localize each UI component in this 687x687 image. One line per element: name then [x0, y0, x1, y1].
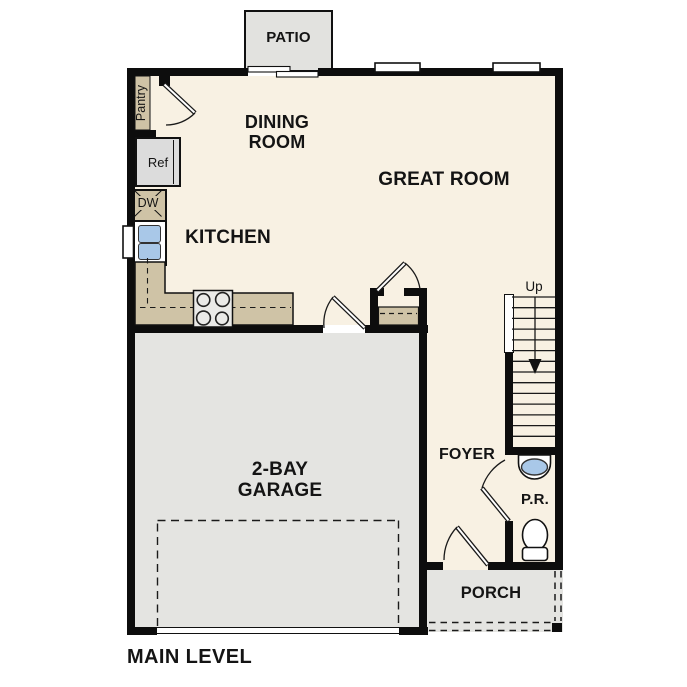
- window-top-2: [493, 63, 540, 72]
- closet-shelf: [379, 307, 419, 325]
- bathroom-sink: [519, 455, 551, 479]
- pantry-door: [164, 84, 195, 125]
- garage-door-dashes: [158, 521, 399, 627]
- dishwasher-cross-icon: [135, 191, 162, 217]
- closet-door: [377, 263, 420, 291]
- floorplan-overlay: [0, 0, 687, 687]
- window-kitchen: [123, 226, 134, 258]
- porch-dashes: [429, 571, 561, 631]
- front-door: [444, 527, 488, 565]
- window-top-1: [375, 63, 420, 72]
- stairs: [512, 297, 555, 436]
- powder-room-door: [482, 460, 509, 521]
- garage-entry-door: [324, 297, 365, 328]
- pantry-shelf: [135, 76, 150, 130]
- floor-plan: Ref: [0, 0, 687, 687]
- sliding-patio-door: [248, 67, 318, 78]
- toilet: [523, 520, 548, 561]
